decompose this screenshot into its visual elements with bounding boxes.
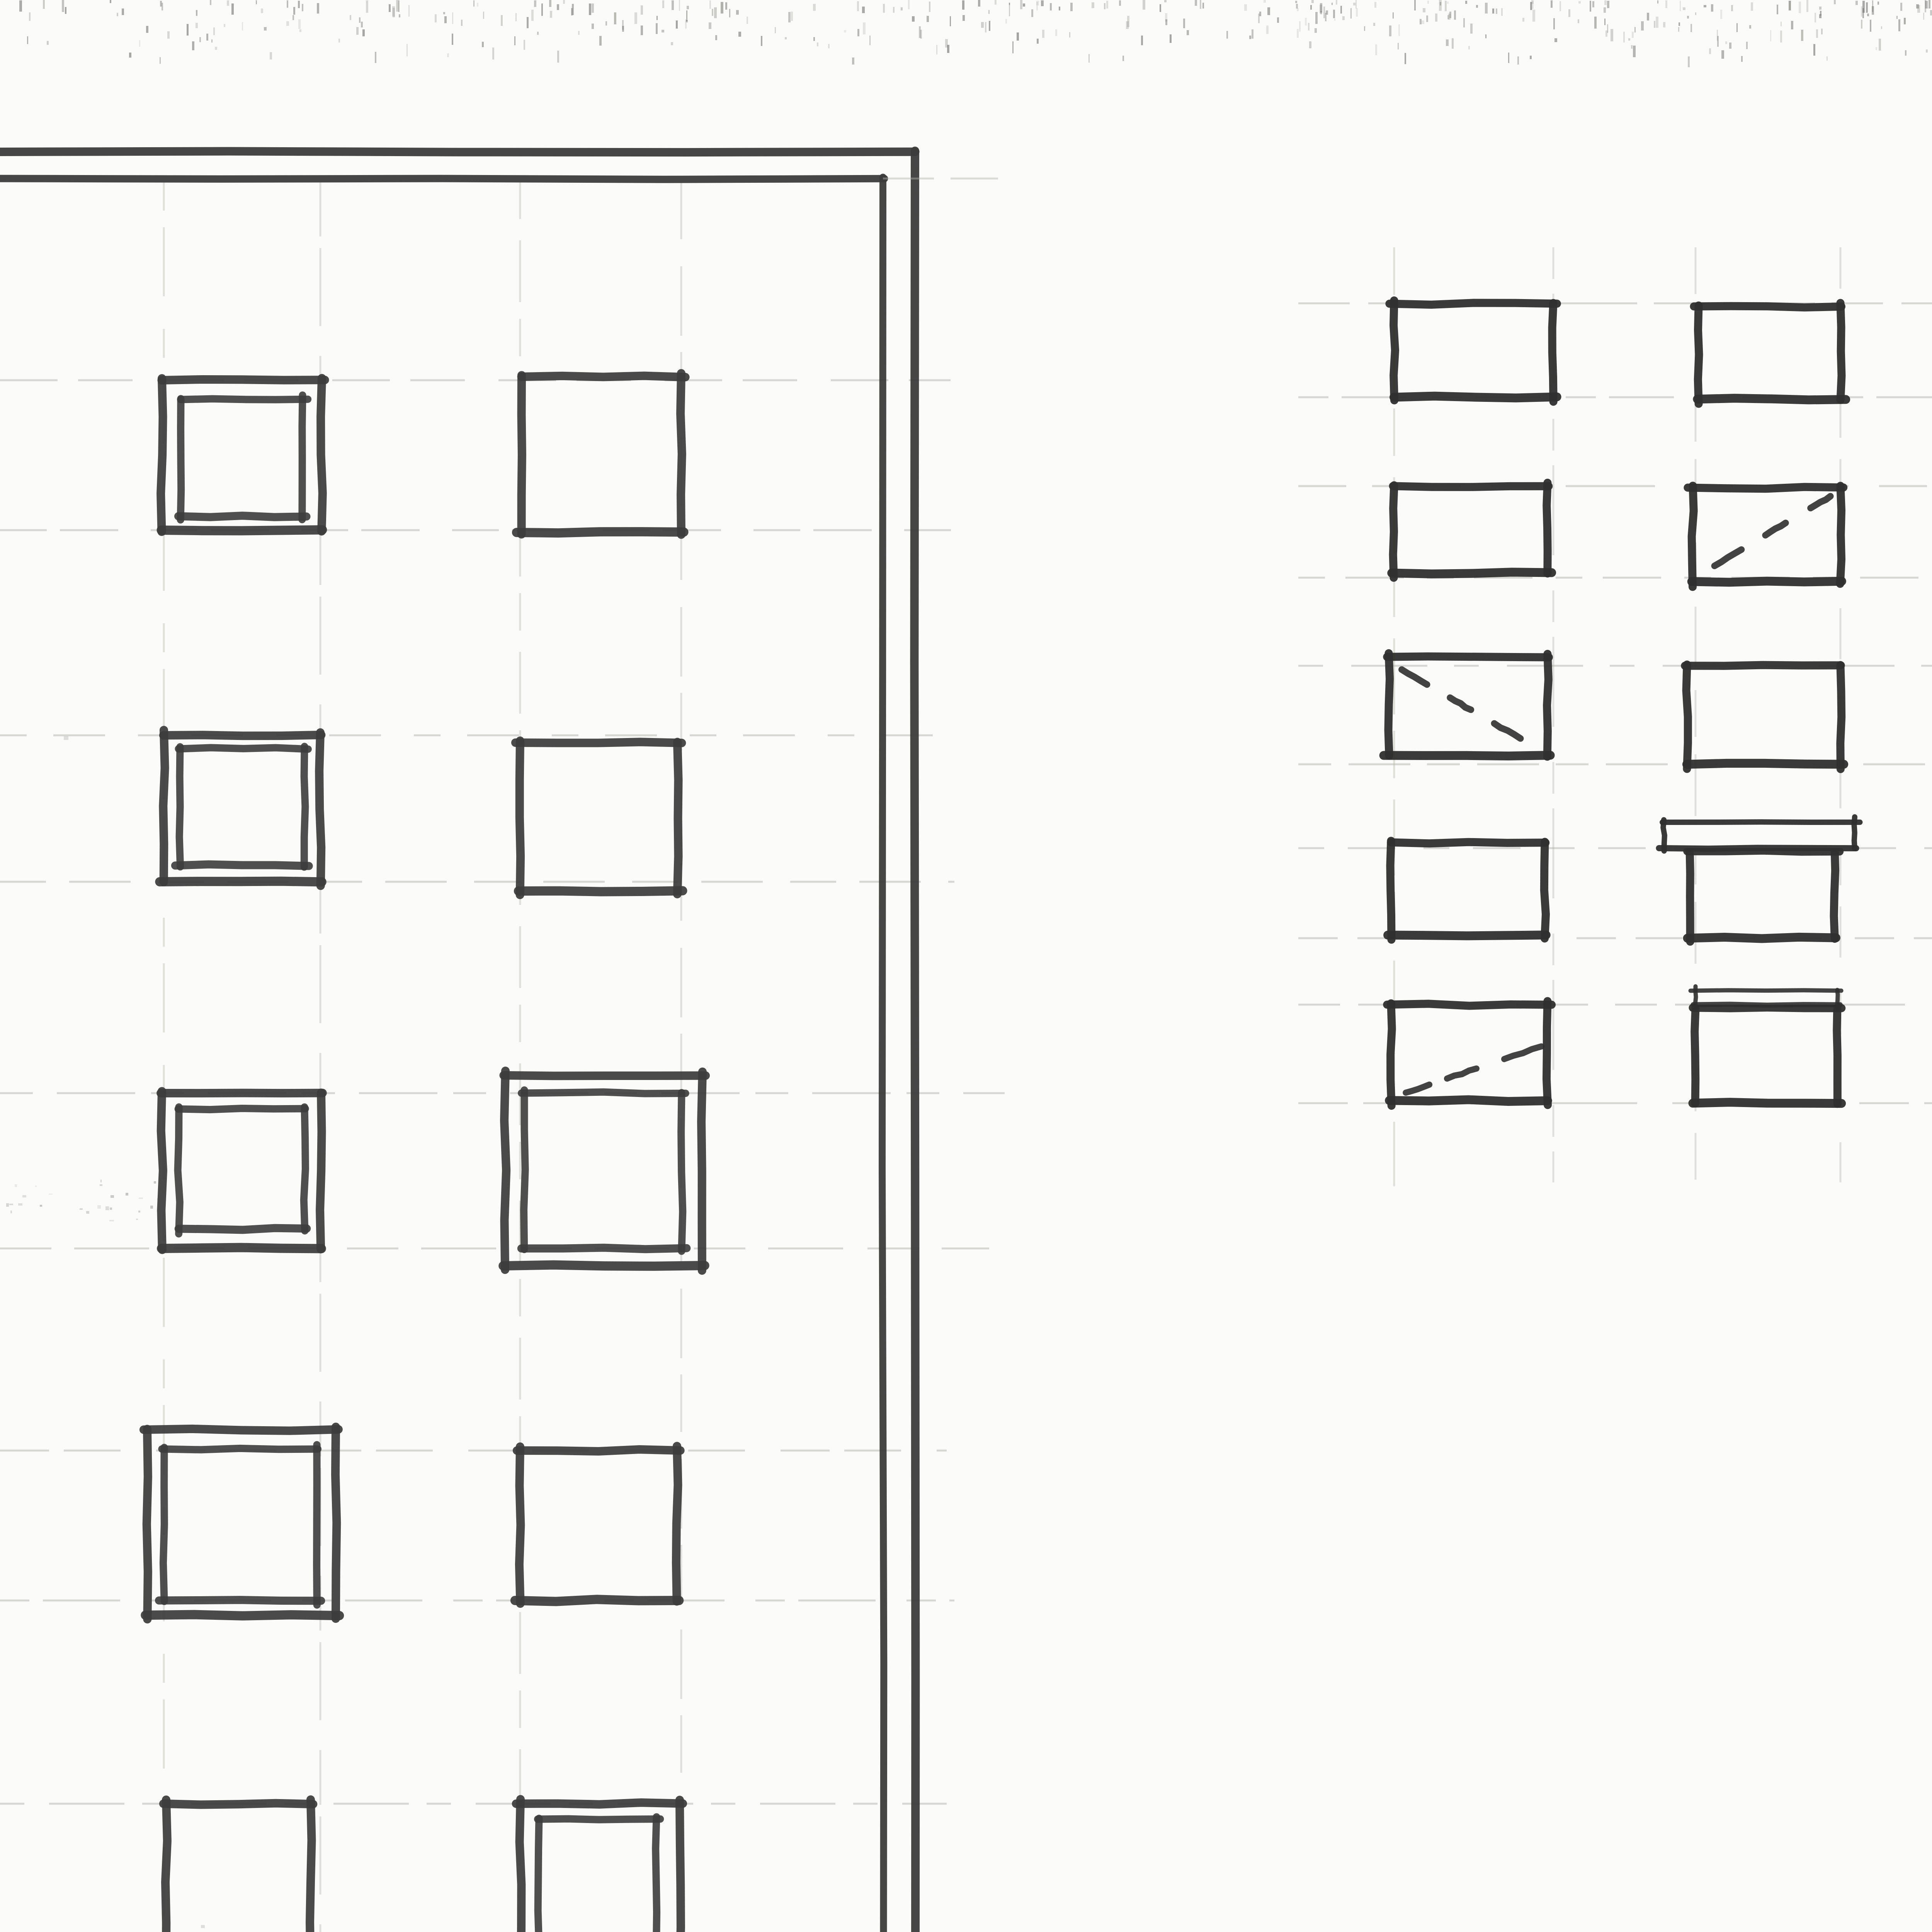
- scan-speck: [444, 16, 447, 23]
- pencil-stroke: [181, 399, 308, 400]
- column-marker-r2c2: [515, 741, 683, 895]
- scan-speck: [399, 14, 400, 17]
- scan-speck: [406, 44, 408, 56]
- pencil-stroke: [159, 1600, 321, 1601]
- scan-speck: [1023, 3, 1025, 7]
- scan-speck: [213, 27, 215, 35]
- scan-speck: [1445, 1, 1447, 11]
- pencil-stroke: [1547, 1001, 1548, 1105]
- scan-speck: [1781, 22, 1782, 26]
- scan-speck: [231, 3, 234, 15]
- scan-speck: [396, 0, 398, 12]
- scan-speck: [1104, 3, 1105, 9]
- column-marker-r3c2: [503, 1071, 706, 1270]
- scan-speck: [1333, 10, 1335, 18]
- scan-speck: [196, 23, 198, 28]
- scan-speck: [1532, 1, 1534, 9]
- scan-speck: [27, 36, 28, 44]
- scan-speck: [1485, 3, 1488, 14]
- scan-speck: [1422, 20, 1424, 24]
- scan-speck: [1315, 28, 1317, 33]
- scan-speck: [1373, 23, 1375, 26]
- scan-speck: [286, 21, 289, 26]
- pencil-stroke: [522, 376, 685, 377]
- scan-speck: [981, 22, 984, 28]
- scan-speck: [1069, 32, 1070, 37]
- scan-speck: [1170, 34, 1172, 43]
- scan-speck: [1452, 38, 1454, 49]
- scan-speck: [9, 1204, 13, 1205]
- scan-speck: [656, 16, 658, 20]
- pencil-stroke: [519, 1447, 521, 1604]
- scan-speck: [492, 48, 494, 60]
- scan-speck: [1055, 29, 1057, 36]
- scan-speck: [1405, 53, 1406, 64]
- pencil-stroke: [1663, 820, 1665, 851]
- pencil-stroke: [517, 1449, 680, 1451]
- scan-speck: [1050, 3, 1052, 10]
- scan-speck: [1680, 1, 1681, 11]
- pencil-stroke: [1450, 698, 1471, 710]
- scan-speck: [1423, 8, 1425, 12]
- scan-speck: [950, 16, 951, 26]
- scan-speck: [1709, 48, 1711, 54]
- pencil-stroke: [1390, 841, 1391, 940]
- scan-speck: [19, 0, 22, 12]
- scan-speck: [785, 37, 787, 39]
- scan-speck: [747, 17, 748, 24]
- column-marker-r5c1: [163, 1799, 315, 1932]
- pencil-stroke: [179, 747, 180, 867]
- pencil-stroke: [1854, 817, 1855, 849]
- scan-speck: [129, 53, 131, 58]
- scan-speck: [86, 1211, 89, 1214]
- scan-speck: [435, 14, 437, 22]
- scan-speck: [1872, 6, 1874, 15]
- scan-speck: [1553, 18, 1555, 29]
- scan-speck: [1904, 18, 1906, 24]
- scan-speck: [65, 7, 66, 14]
- scan-speck: [1594, 17, 1597, 29]
- table-cap-fill: [1664, 822, 1855, 848]
- scan-speck: [622, 20, 624, 30]
- pencil-stroke: [1811, 496, 1830, 508]
- scan-speck: [1447, 2, 1449, 4]
- pencil-stroke: [1384, 755, 1550, 756]
- pencil-stroke: [161, 1091, 163, 1250]
- scan-speck: [1277, 17, 1279, 23]
- scan-speck: [1925, 0, 1926, 12]
- scan-speck: [47, 41, 49, 45]
- scan-speck: [912, 16, 915, 22]
- scan-speck: [100, 1184, 102, 1186]
- scan-speck: [43, 0, 45, 9]
- scan-speck: [256, 0, 257, 4]
- scan-speck: [1244, 4, 1247, 11]
- scan-speck: [614, 12, 616, 24]
- scan-speck: [117, 13, 118, 16]
- scan-speck: [1631, 45, 1633, 49]
- scan-speck: [1017, 32, 1019, 41]
- scan-speck: [729, 9, 730, 17]
- column-marker-r1c1: [161, 378, 325, 532]
- scan-speck: [1633, 46, 1636, 57]
- pencil-stroke: [304, 1107, 305, 1231]
- floor-plan-walls: [0, 151, 1016, 1932]
- pencil-stroke: [175, 864, 309, 866]
- scan-speck: [1258, 14, 1260, 23]
- scan-speck: [1308, 23, 1310, 31]
- scan-speck: [715, 35, 717, 40]
- scan-speck: [1578, 1, 1581, 3]
- scan-speck: [227, 0, 229, 6]
- scan-speck: [1634, 27, 1636, 32]
- pencil-stroke: [677, 742, 679, 894]
- pencil-stroke: [1394, 396, 1557, 398]
- scan-speck: [1688, 56, 1690, 67]
- scan-speck: [1815, 13, 1816, 22]
- scan-speck: [1741, 56, 1743, 62]
- scan-speck: [1332, 3, 1333, 5]
- scan-speck: [211, 39, 213, 43]
- scan-speck: [299, 29, 301, 32]
- pencil-stroke: [1694, 306, 1842, 307]
- scan-speck: [901, 7, 903, 10]
- pencil-stroke: [1686, 665, 1688, 769]
- scan-speck: [139, 40, 140, 47]
- scan-speck: [549, 0, 551, 7]
- column-marker-r1c2: [517, 373, 685, 534]
- scan-speck: [1923, 13, 1924, 20]
- pencil-stroke: [1388, 653, 1390, 756]
- scan-speck: [447, 53, 449, 57]
- scan-speck: [138, 1211, 140, 1213]
- scan-speck: [1736, 23, 1738, 32]
- pencil-stroke: [1389, 303, 1557, 305]
- pencil-stroke: [681, 1093, 683, 1251]
- scan-speck: [1751, 2, 1753, 11]
- scan-speck: [224, 24, 225, 27]
- pencil-stroke: [1447, 1068, 1476, 1078]
- scan-speck: [1879, 39, 1881, 51]
- pencil-stroke: [162, 1248, 321, 1249]
- pencil-stroke: [144, 1429, 338, 1431]
- scan-speck: [1819, 7, 1821, 10]
- pencil-stroke: [1840, 486, 1841, 584]
- pencil-stroke: [162, 379, 325, 380]
- scan-speck: [1320, 11, 1322, 14]
- scan-speck: [541, 3, 543, 16]
- scan-speck: [537, 32, 539, 35]
- scan-speck: [1119, 0, 1121, 6]
- pencil-stroke: [319, 733, 321, 886]
- scan-speck: [1398, 43, 1399, 49]
- scan-speck: [578, 31, 580, 35]
- scan-speck: [687, 6, 689, 9]
- scan-speck: [662, 30, 664, 32]
- scan-speck: [686, 20, 688, 22]
- scan-speck: [1678, 27, 1679, 32]
- pencil-stroke: [147, 1429, 148, 1619]
- scan-speck: [1252, 29, 1253, 39]
- scan-speck: [828, 44, 830, 48]
- scan-speck: [1088, 54, 1090, 63]
- scan-speck: [443, 12, 445, 14]
- scan-speck: [1031, 9, 1033, 17]
- scan-speck: [1777, 5, 1778, 14]
- pencil-stroke: [1391, 1003, 1392, 1106]
- scan-speck: [1900, 3, 1902, 11]
- scan-speck: [215, 47, 217, 50]
- pencil-stroke: [1402, 670, 1427, 685]
- scan-speck: [1568, 9, 1570, 17]
- pencil-stroke: [1387, 656, 1549, 657]
- scan-speck: [1364, 26, 1365, 31]
- scan-speck: [1042, 30, 1044, 38]
- scan-speck: [1426, 15, 1428, 22]
- pencil-stroke: [1547, 654, 1549, 757]
- scan-speck: [40, 1205, 42, 1207]
- scan-speck: [1297, 29, 1299, 38]
- pencil-stroke: [1685, 665, 1841, 666]
- scan-speck: [264, 27, 267, 31]
- scan-speck: [527, 17, 529, 28]
- pencil-stroke: [178, 1107, 180, 1234]
- scan-speck: [1813, 44, 1815, 56]
- pencil-stroke: [1389, 1100, 1548, 1102]
- scan-speck: [1009, 5, 1010, 16]
- scan-speck: [1463, 18, 1465, 27]
- scan-speck: [978, 0, 980, 7]
- pencil-stroke: [1692, 581, 1842, 582]
- scan-speck: [477, 3, 478, 7]
- scan-speck: [1834, 0, 1836, 4]
- scan-speck: [359, 17, 361, 23]
- scan-speck: [10, 1211, 12, 1213]
- pencil-stroke: [1693, 1004, 1840, 1005]
- furniture-cell-r2c1: [1392, 483, 1552, 578]
- scan-speck: [64, 736, 68, 740]
- pencil-stroke: [914, 151, 915, 1932]
- scan-speck: [775, 27, 776, 33]
- scan-speck: [1160, 4, 1161, 12]
- floor-plan-guides: [0, 182, 1005, 1932]
- scan-speck: [1821, 29, 1823, 34]
- scan-speck: [1623, 32, 1625, 43]
- scan-speck: [1476, 5, 1478, 8]
- pencil-stroke: [1695, 1008, 1696, 1104]
- scan-speck: [122, 9, 124, 15]
- pencil-stroke: [503, 1265, 704, 1266]
- pencil-stroke: [0, 151, 915, 153]
- scan-speck: [1725, 41, 1727, 44]
- pencil-stroke: [680, 1800, 681, 1932]
- pencil-stroke: [1688, 487, 1844, 489]
- scan-speck: [534, 0, 536, 7]
- scan-speck: [1530, 56, 1532, 59]
- scan-speck: [111, 1195, 114, 1198]
- pencil-stroke: [524, 1090, 526, 1250]
- scan-speck: [1679, 22, 1680, 26]
- pencil-stroke: [1690, 850, 1690, 942]
- scan-speck: [995, 0, 997, 5]
- pencil-stroke: [320, 1093, 321, 1249]
- pencil-stroke: [504, 1075, 706, 1076]
- scan-speck: [514, 36, 515, 45]
- scan-speck: [1005, 19, 1007, 24]
- scan-speck: [1492, 9, 1494, 14]
- furniture-cell-r1c1: [1389, 301, 1557, 402]
- pencil-stroke: [1840, 303, 1842, 400]
- pencil-stroke: [161, 378, 163, 532]
- furniture-grid: [1298, 247, 1932, 1186]
- scan-speck: [1350, 8, 1352, 19]
- scan-speck: [1143, 0, 1145, 10]
- pencil-stroke: [162, 530, 323, 531]
- column-marker-r2c1: [160, 730, 321, 886]
- scan-speck: [1522, 18, 1524, 22]
- scan-speck: [1355, 0, 1357, 9]
- scan-speck: [1647, 13, 1649, 20]
- scan-speck: [196, 10, 197, 16]
- scan-noise: [6, 0, 1932, 1932]
- pencil-stroke: [1406, 1085, 1429, 1093]
- scan-speck: [1930, 10, 1932, 15]
- scan-speck: [298, 19, 301, 29]
- furniture-cell-r3c1: [1384, 653, 1550, 757]
- scan-speck: [452, 34, 453, 45]
- column-marker-r4c1: [144, 1427, 339, 1619]
- scan-speck: [1334, 19, 1335, 21]
- pencil-stroke: [1687, 763, 1844, 764]
- scan-speck: [1604, 7, 1606, 13]
- column-marker-r5c2: [515, 1799, 684, 1932]
- scan-speck: [154, 1181, 156, 1184]
- scan-speck: [1604, 0, 1607, 5]
- scan-speck: [1789, 1, 1791, 10]
- scan-speck: [1323, 7, 1325, 18]
- scan-speck: [1449, 12, 1451, 18]
- scan-speck: [1266, 26, 1269, 34]
- pencil-stroke: [680, 373, 682, 534]
- scan-speck: [1729, 43, 1731, 49]
- scan-speck: [22, 1195, 26, 1197]
- scan-speck: [844, 30, 846, 32]
- scan-speck: [686, 10, 687, 21]
- scan-speck: [1202, 3, 1204, 9]
- scan-speck: [452, 12, 453, 24]
- pencil-stroke: [163, 1803, 313, 1805]
- pencil-stroke: [1387, 1004, 1552, 1006]
- pencil-stroke: [160, 881, 321, 882]
- scan-speck: [356, 27, 359, 35]
- scan-speck: [1389, 26, 1391, 36]
- furniture-cell-r4c1: [1388, 841, 1546, 940]
- scan-speck: [1336, 0, 1337, 5]
- scan-speck: [146, 26, 148, 33]
- scan-speck: [761, 36, 762, 46]
- scan-speck: [1896, 16, 1898, 19]
- scan-speck: [1717, 30, 1718, 41]
- scan-speck: [1560, 1, 1561, 11]
- scan-speck: [1374, 2, 1376, 8]
- scan-speck: [920, 30, 922, 39]
- pencil-stroke: [1696, 986, 1696, 1008]
- scan-speck: [788, 12, 791, 22]
- pencil-stroke: [1687, 937, 1836, 939]
- scan-speck: [1720, 10, 1722, 19]
- scan-speck: [1861, 6, 1862, 17]
- scan-speck: [206, 34, 208, 41]
- pencil-stroke: [1698, 306, 1699, 404]
- scan-speck: [1870, 20, 1871, 32]
- scan-speck: [531, 10, 534, 21]
- scan-speck: [672, 0, 674, 10]
- scan-speck: [712, 9, 713, 16]
- scan-speck: [1605, 31, 1607, 37]
- scan-speck: [1126, 21, 1129, 29]
- scan-speck: [592, 3, 594, 13]
- pencil-stroke: [1765, 523, 1786, 535]
- scan-speck: [857, 29, 859, 36]
- scan-speck: [100, 1180, 102, 1182]
- scan-speck: [1393, 12, 1394, 19]
- scan-speck: [1876, 47, 1877, 50]
- scan-speck: [1165, 19, 1167, 25]
- scan-speck: [293, 15, 294, 20]
- scan-speck: [1353, 3, 1355, 5]
- scan-speck: [1309, 41, 1311, 48]
- scan-speck: [1310, 5, 1312, 10]
- architectural-plan-sketch: PLAN: [0, 0, 1932, 1932]
- scan-speck: [1855, 1, 1858, 5]
- scan-speck: [1435, 14, 1437, 22]
- scan-speck: [1496, 9, 1497, 14]
- scan-speck: [592, 24, 594, 29]
- scan-speck: [482, 42, 484, 47]
- pencil-stroke: [882, 177, 884, 1932]
- pencil-stroke: [522, 375, 522, 534]
- scan-speck: [501, 15, 503, 26]
- scan-speck: [1905, 50, 1906, 56]
- furniture-cell-r3c2: [1685, 665, 1844, 769]
- scan-speck: [1749, 25, 1751, 29]
- scan-speck: [483, 12, 484, 19]
- scan-speck: [1604, 19, 1605, 25]
- scan-speck: [557, 4, 559, 10]
- scan-speck: [929, 2, 930, 12]
- scan-speck: [988, 10, 990, 14]
- scan-speck: [1264, 0, 1266, 3]
- scan-speck: [1340, 6, 1342, 14]
- scan-speck: [293, 7, 295, 15]
- pencil-stroke: [179, 748, 308, 749]
- pencil-stroke: [1547, 483, 1548, 573]
- pencil-stroke: [302, 395, 303, 520]
- scan-speck: [599, 36, 602, 46]
- scan-speck: [721, 2, 723, 14]
- scan-speck: [389, 4, 391, 12]
- scan-speck: [1578, 19, 1579, 23]
- scan-speck: [1590, 1, 1591, 12]
- column-marker-r3c1: [161, 1091, 323, 1250]
- scan-speck: [1485, 34, 1486, 38]
- scan-speck: [1009, 3, 1010, 5]
- scan-speck: [863, 22, 866, 34]
- scan-speck: [1731, 5, 1733, 11]
- scan-speck: [709, 0, 711, 9]
- scan-speck: [1226, 31, 1228, 39]
